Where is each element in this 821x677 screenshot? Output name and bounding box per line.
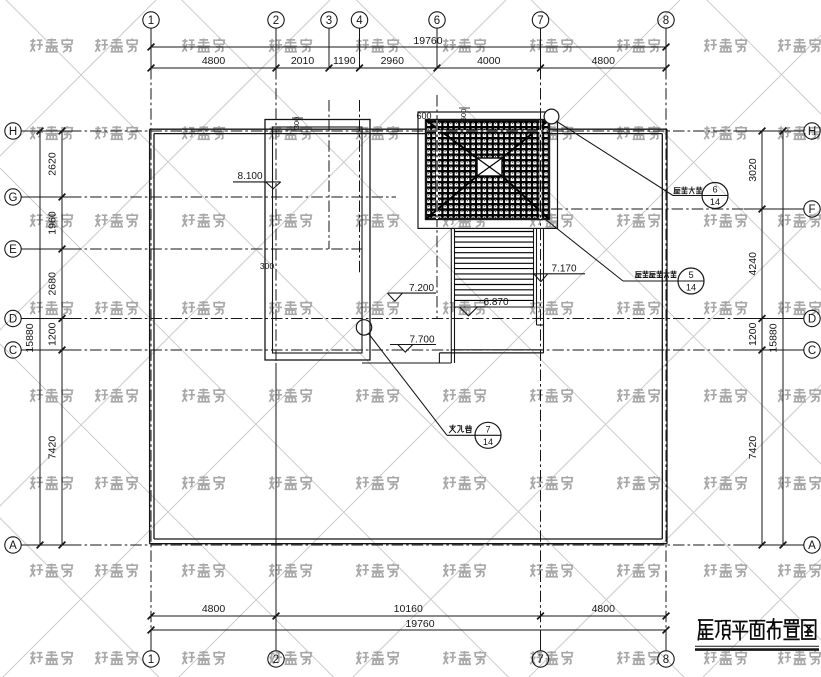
svg-text:6: 6	[712, 185, 717, 195]
svg-text:600: 600	[416, 111, 431, 121]
svg-text:19760: 19760	[413, 35, 442, 47]
svg-text:7: 7	[537, 654, 543, 666]
svg-text:7: 7	[537, 15, 543, 27]
svg-text:5: 5	[688, 270, 693, 280]
svg-text:8.100: 8.100	[237, 171, 262, 182]
svg-text:6: 6	[434, 15, 440, 27]
svg-text:7: 7	[485, 424, 490, 434]
svg-text:4: 4	[356, 15, 363, 27]
svg-text:1190: 1190	[333, 55, 356, 67]
svg-text:14: 14	[686, 283, 696, 293]
svg-text:15880: 15880	[24, 323, 36, 352]
svg-text:7.700: 7.700	[409, 335, 434, 346]
svg-text:2: 2	[273, 15, 279, 27]
svg-text:14: 14	[483, 437, 493, 447]
svg-text:2620: 2620	[47, 152, 59, 176]
svg-text:4000: 4000	[477, 55, 501, 67]
svg-text:4800: 4800	[592, 55, 616, 67]
svg-text:4800: 4800	[202, 55, 226, 67]
svg-text:4800: 4800	[592, 603, 616, 615]
svg-text:D: D	[808, 314, 816, 326]
svg-text:2680: 2680	[47, 272, 59, 296]
svg-text:4240: 4240	[747, 252, 759, 276]
svg-text:G: G	[9, 192, 18, 204]
svg-text:A: A	[9, 540, 17, 552]
svg-text:1960: 1960	[47, 211, 59, 235]
svg-text:H: H	[9, 126, 17, 138]
svg-text:1200: 1200	[47, 322, 59, 346]
svg-text:4800: 4800	[202, 603, 226, 615]
svg-text:7420: 7420	[747, 436, 759, 460]
svg-text:3: 3	[326, 15, 332, 27]
svg-text:3020: 3020	[747, 158, 759, 182]
svg-text:H: H	[808, 126, 816, 138]
svg-text:2960: 2960	[381, 55, 405, 67]
svg-text:8: 8	[663, 15, 669, 27]
svg-text:1: 1	[148, 15, 154, 27]
svg-text:15880: 15880	[768, 323, 780, 352]
svg-text:D: D	[9, 314, 17, 326]
svg-text:7.200: 7.200	[409, 283, 434, 294]
svg-text:F: F	[808, 204, 815, 216]
svg-text:C: C	[808, 345, 816, 357]
svg-text:8: 8	[663, 654, 669, 666]
svg-text:19760: 19760	[405, 618, 434, 630]
svg-text:6.870: 6.870	[483, 297, 508, 308]
svg-text:C: C	[9, 345, 17, 357]
svg-text:E: E	[9, 244, 17, 256]
svg-text:7420: 7420	[47, 436, 59, 460]
svg-text:14: 14	[710, 197, 720, 207]
svg-text:10160: 10160	[394, 603, 423, 615]
svg-text:2: 2	[273, 654, 279, 666]
svg-text:A: A	[808, 540, 816, 552]
svg-text:1: 1	[148, 654, 154, 666]
svg-text:600: 600	[459, 109, 468, 122]
svg-text:1200: 1200	[747, 322, 759, 346]
svg-text:7.170: 7.170	[551, 264, 576, 275]
svg-text:300: 300	[260, 261, 274, 271]
svg-text:2010: 2010	[291, 55, 315, 67]
